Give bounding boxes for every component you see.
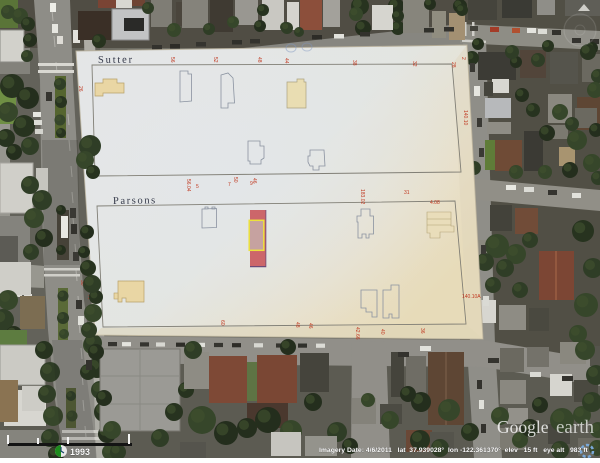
svg-text:52: 52 <box>212 57 218 63</box>
svg-text:42.66: 42.66 <box>354 327 360 340</box>
svg-text:56.04: 56.04 <box>185 179 191 192</box>
svg-text:50: 50 <box>232 177 238 183</box>
svg-text:4.08: 4.08 <box>430 200 440 206</box>
svg-text:earth: earth <box>556 417 594 438</box>
svg-text:7: 7 <box>228 182 231 188</box>
svg-text:2: 2 <box>460 57 466 60</box>
svg-text:31: 31 <box>404 190 410 196</box>
svg-text:26: 26 <box>77 86 83 92</box>
svg-text:Sutter: Sutter <box>98 55 134 66</box>
svg-text:56: 56 <box>169 57 175 63</box>
svg-text:48: 48 <box>294 322 300 328</box>
svg-text:5: 5 <box>196 184 199 190</box>
svg-text:9: 9 <box>250 181 253 187</box>
svg-text:32: 32 <box>411 61 417 67</box>
svg-text:Parsons: Parsons <box>113 195 157 207</box>
svg-text:60: 60 <box>219 320 225 326</box>
svg-text:46: 46 <box>307 323 313 329</box>
svg-text:40: 40 <box>379 329 385 335</box>
svg-text:38: 38 <box>351 60 357 66</box>
svg-text:140.10A: 140.10A <box>462 294 481 300</box>
svg-text:Google: Google <box>497 417 549 437</box>
svg-text:140.10: 140.10 <box>462 110 468 126</box>
svg-text:28: 28 <box>450 62 456 68</box>
svg-text:Imagery Date: 4/6/2011 lat: Imagery Date: 4/6/2011 lat 37.939028° lo… <box>319 446 589 454</box>
svg-text:183.02: 183.02 <box>359 189 365 205</box>
svg-text:48: 48 <box>256 57 262 63</box>
svg-text:36: 36 <box>419 328 425 334</box>
svg-text:44: 44 <box>283 58 289 64</box>
svg-text:1993: 1993 <box>70 447 90 457</box>
